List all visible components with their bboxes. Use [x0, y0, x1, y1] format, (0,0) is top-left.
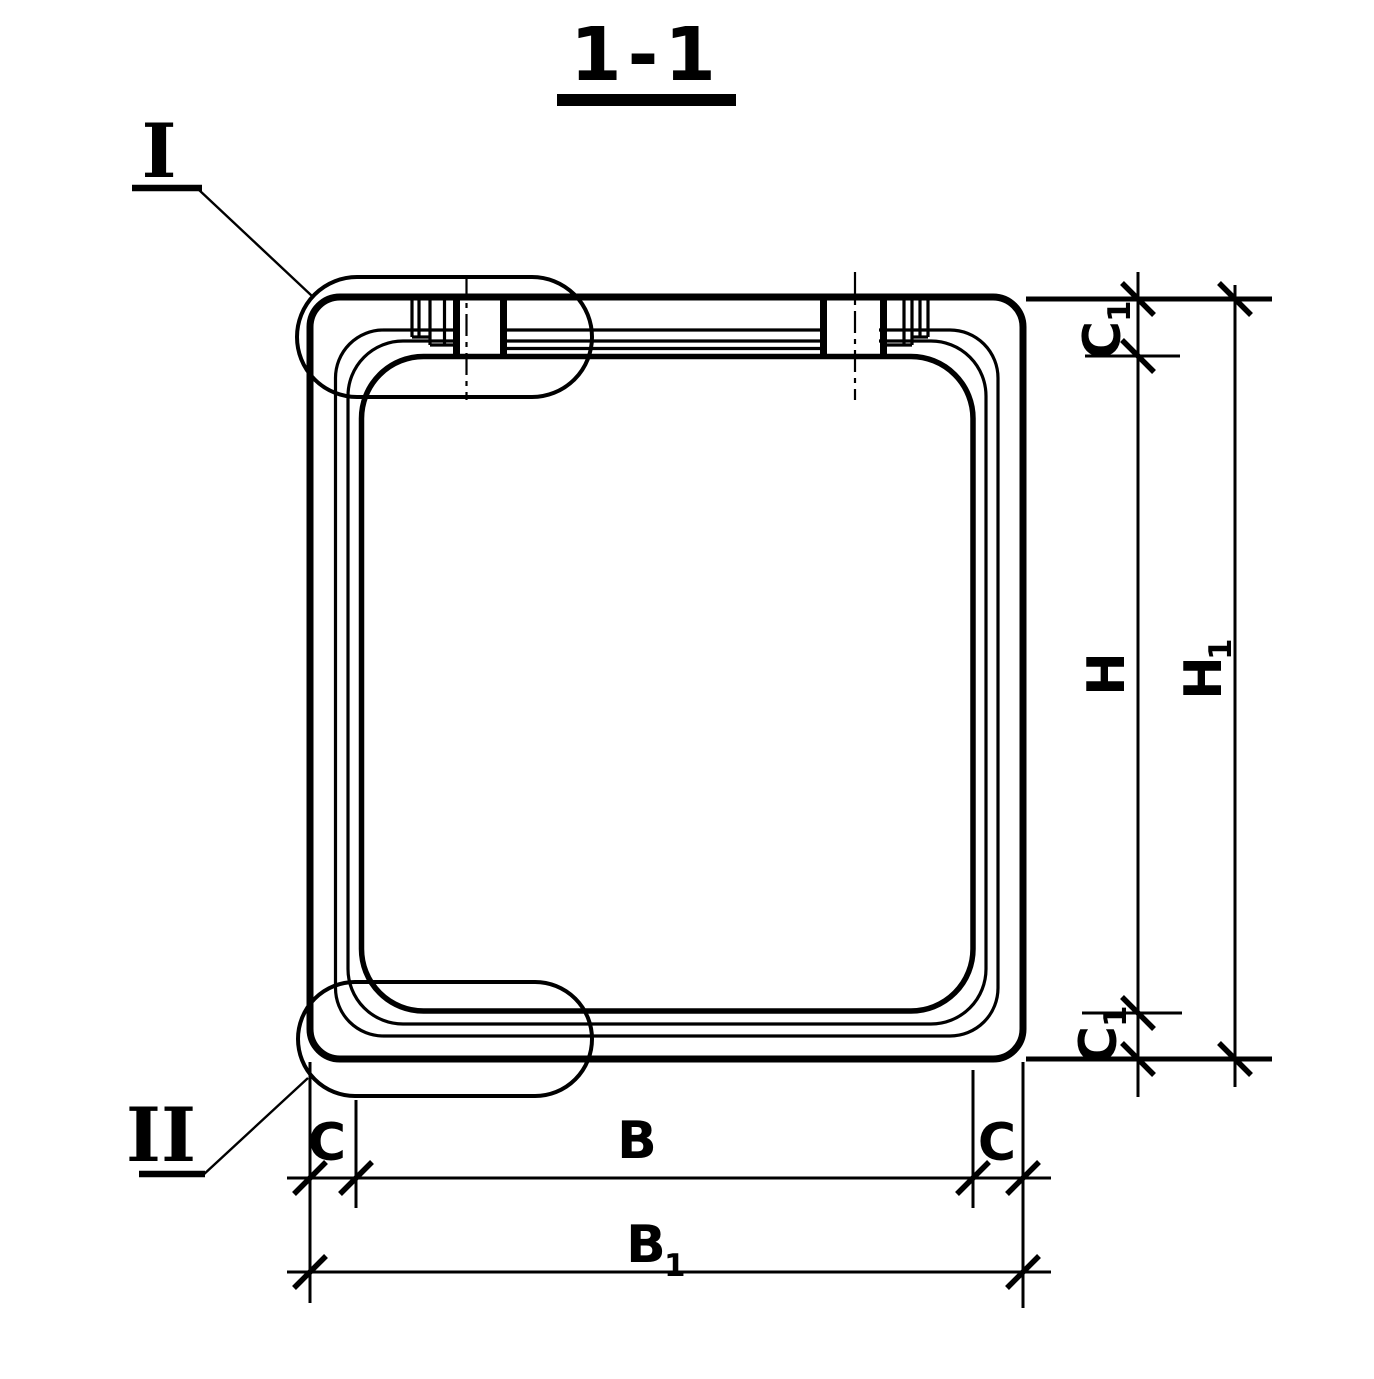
dimension-label-c-left: C: [308, 1113, 346, 1173]
dim-label-main: C: [1073, 321, 1133, 359]
detail-ii-boundary: [298, 982, 592, 1096]
section-1-1-drawing: 1-1: [0, 0, 1374, 1379]
dim-label-sub: 1: [1102, 300, 1138, 322]
horizontal-dimensions: C B C B 1: [287, 1062, 1051, 1308]
frame-section: [310, 272, 1023, 1059]
vertical-dimensions: C 1 H H 1 C 1: [1026, 272, 1272, 1097]
dim-label-sub: 1: [1098, 1005, 1134, 1027]
dim-label-main: B: [626, 1215, 666, 1275]
drawing-title-block: 1-1: [557, 12, 736, 100]
dimension-label-h: H: [1077, 652, 1137, 696]
detail-i-label: I: [141, 107, 176, 195]
dimension-label-c1-top: C 1: [1073, 300, 1138, 359]
dim-label-sub: 1: [664, 1248, 686, 1284]
chamfer-contour-outer: [336, 330, 999, 1036]
section-title: 1-1: [570, 12, 722, 98]
dimension-label-b: B: [617, 1111, 657, 1171]
dim-label-main: H: [1077, 652, 1137, 696]
dimension-label-c1-bottom: C 1: [1069, 1005, 1134, 1064]
dim-label-sub: 1: [1203, 638, 1239, 660]
section-drawing-sheet: 1-1: [0, 0, 1374, 1379]
detail-i-leader-line: [198, 189, 312, 296]
dim-label-main: H: [1174, 656, 1234, 700]
detail-ii-label: II: [126, 1091, 196, 1179]
dimension-label-b1: B 1: [626, 1215, 685, 1284]
joint-opening-right: [827, 309, 879, 349]
detail-ii-leader-line: [202, 1078, 308, 1176]
dimension-label-c-right: C: [978, 1113, 1016, 1173]
inner-contour: [362, 357, 974, 1012]
dim-label-main: C: [1069, 1026, 1129, 1064]
outer-contour: [310, 297, 1023, 1059]
dimension-label-h1: H 1: [1174, 638, 1239, 699]
chamfer-contour-inner: [348, 341, 986, 1024]
